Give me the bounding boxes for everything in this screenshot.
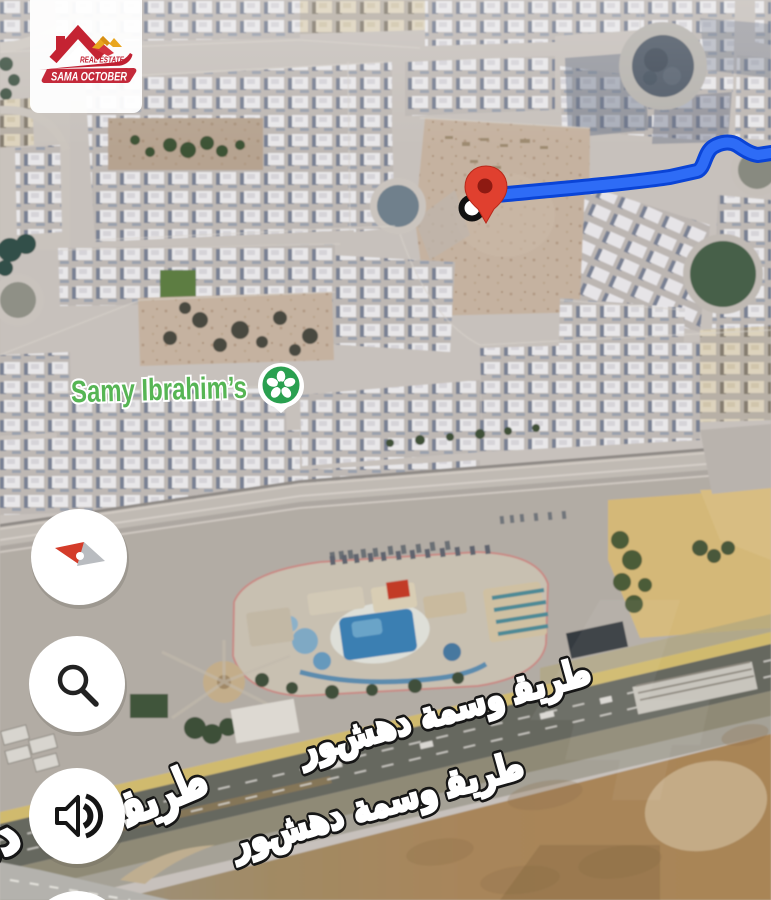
svg-text:REAL ESTATE: REAL ESTATE (80, 55, 124, 65)
svg-text:Samy Ibrahim’s: Samy Ibrahim’s (71, 370, 248, 410)
svg-text:SAMA OCTOBER: SAMA OCTOBER (51, 72, 128, 84)
